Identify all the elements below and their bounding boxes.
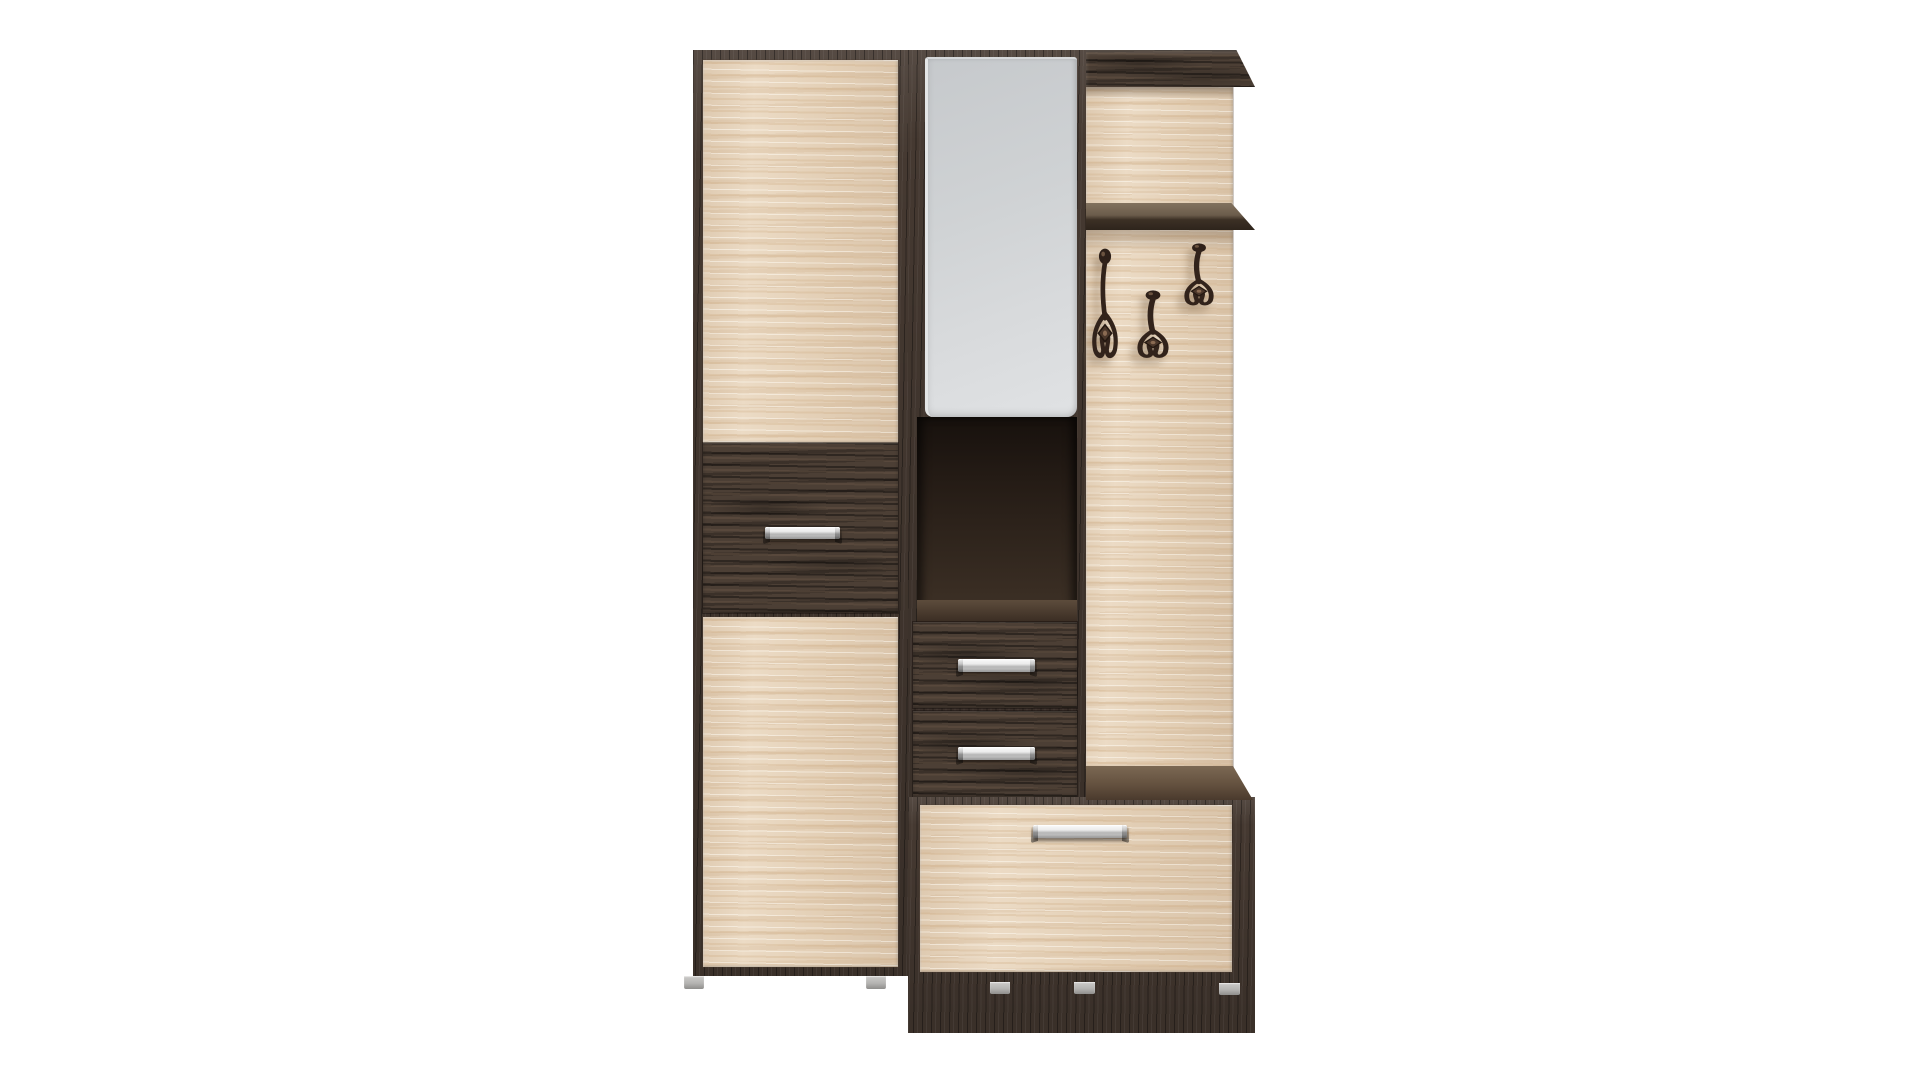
furniture-foot [990,982,1010,994]
furniture-foot [684,976,704,989]
furniture-foot [1219,983,1240,995]
top-cornice [1086,50,1255,87]
hallway-wardrobe-set [693,49,1255,999]
hat-shelf [1086,203,1255,230]
open-niche [917,417,1077,622]
coat-hook-icon [1183,243,1215,311]
center-drawer-upper-handle [958,659,1035,672]
coat-hook-icon [1136,290,1170,364]
shoe-bench-top [1086,766,1253,800]
niche-floor [917,600,1077,622]
left-drawer-handle [765,527,840,539]
center-drawer-lower-handle [958,747,1035,760]
left-wardrobe-top-door [703,60,898,443]
furniture-foot [1074,982,1095,994]
mirror [925,57,1077,417]
furniture-foot [866,976,886,989]
shoe-drawer-handle [1033,825,1127,838]
left-wardrobe-bottom-door [703,617,898,967]
coat-panel [1086,87,1233,768]
product-photo-canvas [0,0,1920,1080]
coat-hook-icon [1091,248,1119,368]
